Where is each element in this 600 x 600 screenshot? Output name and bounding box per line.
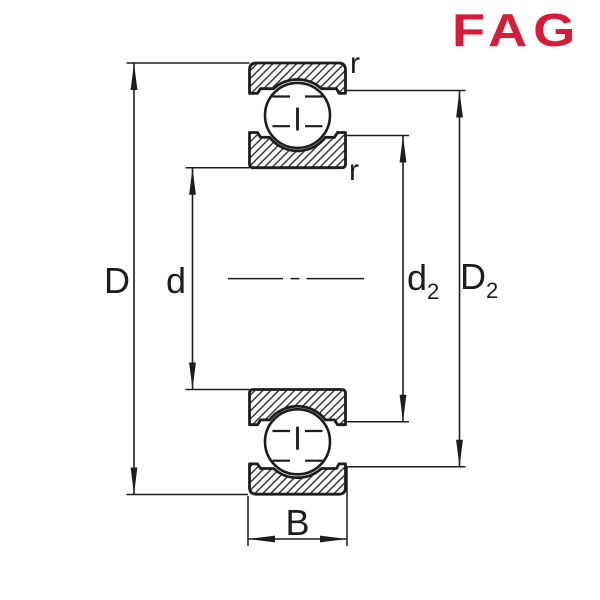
arrow-left xyxy=(248,536,275,543)
arrow-down xyxy=(131,468,138,495)
bearing-drawing: D d d2 D2 B r r FAG xyxy=(0,0,600,600)
arrow-up xyxy=(189,168,196,195)
label-d: d xyxy=(166,260,186,301)
arrow-up xyxy=(400,136,407,163)
arrow-down xyxy=(456,440,463,467)
label-D: D xyxy=(104,260,130,301)
arrow-up xyxy=(456,91,463,118)
label-r-top: r xyxy=(350,47,360,80)
fag-logo: FAG xyxy=(452,4,581,56)
label-r-bottom: r xyxy=(349,154,359,187)
bearing-section-bottom xyxy=(250,390,346,495)
bearing-section-top xyxy=(250,63,346,168)
drawing-canvas: D d d2 D2 B r r FAG xyxy=(0,0,600,600)
arrow-up xyxy=(131,63,138,90)
arrow-down xyxy=(400,395,407,422)
label-B: B xyxy=(285,502,309,543)
label-D2: D2 xyxy=(460,256,498,303)
label-d2: d2 xyxy=(407,257,439,304)
arrow-down xyxy=(189,363,196,390)
arrow-right xyxy=(320,536,347,543)
